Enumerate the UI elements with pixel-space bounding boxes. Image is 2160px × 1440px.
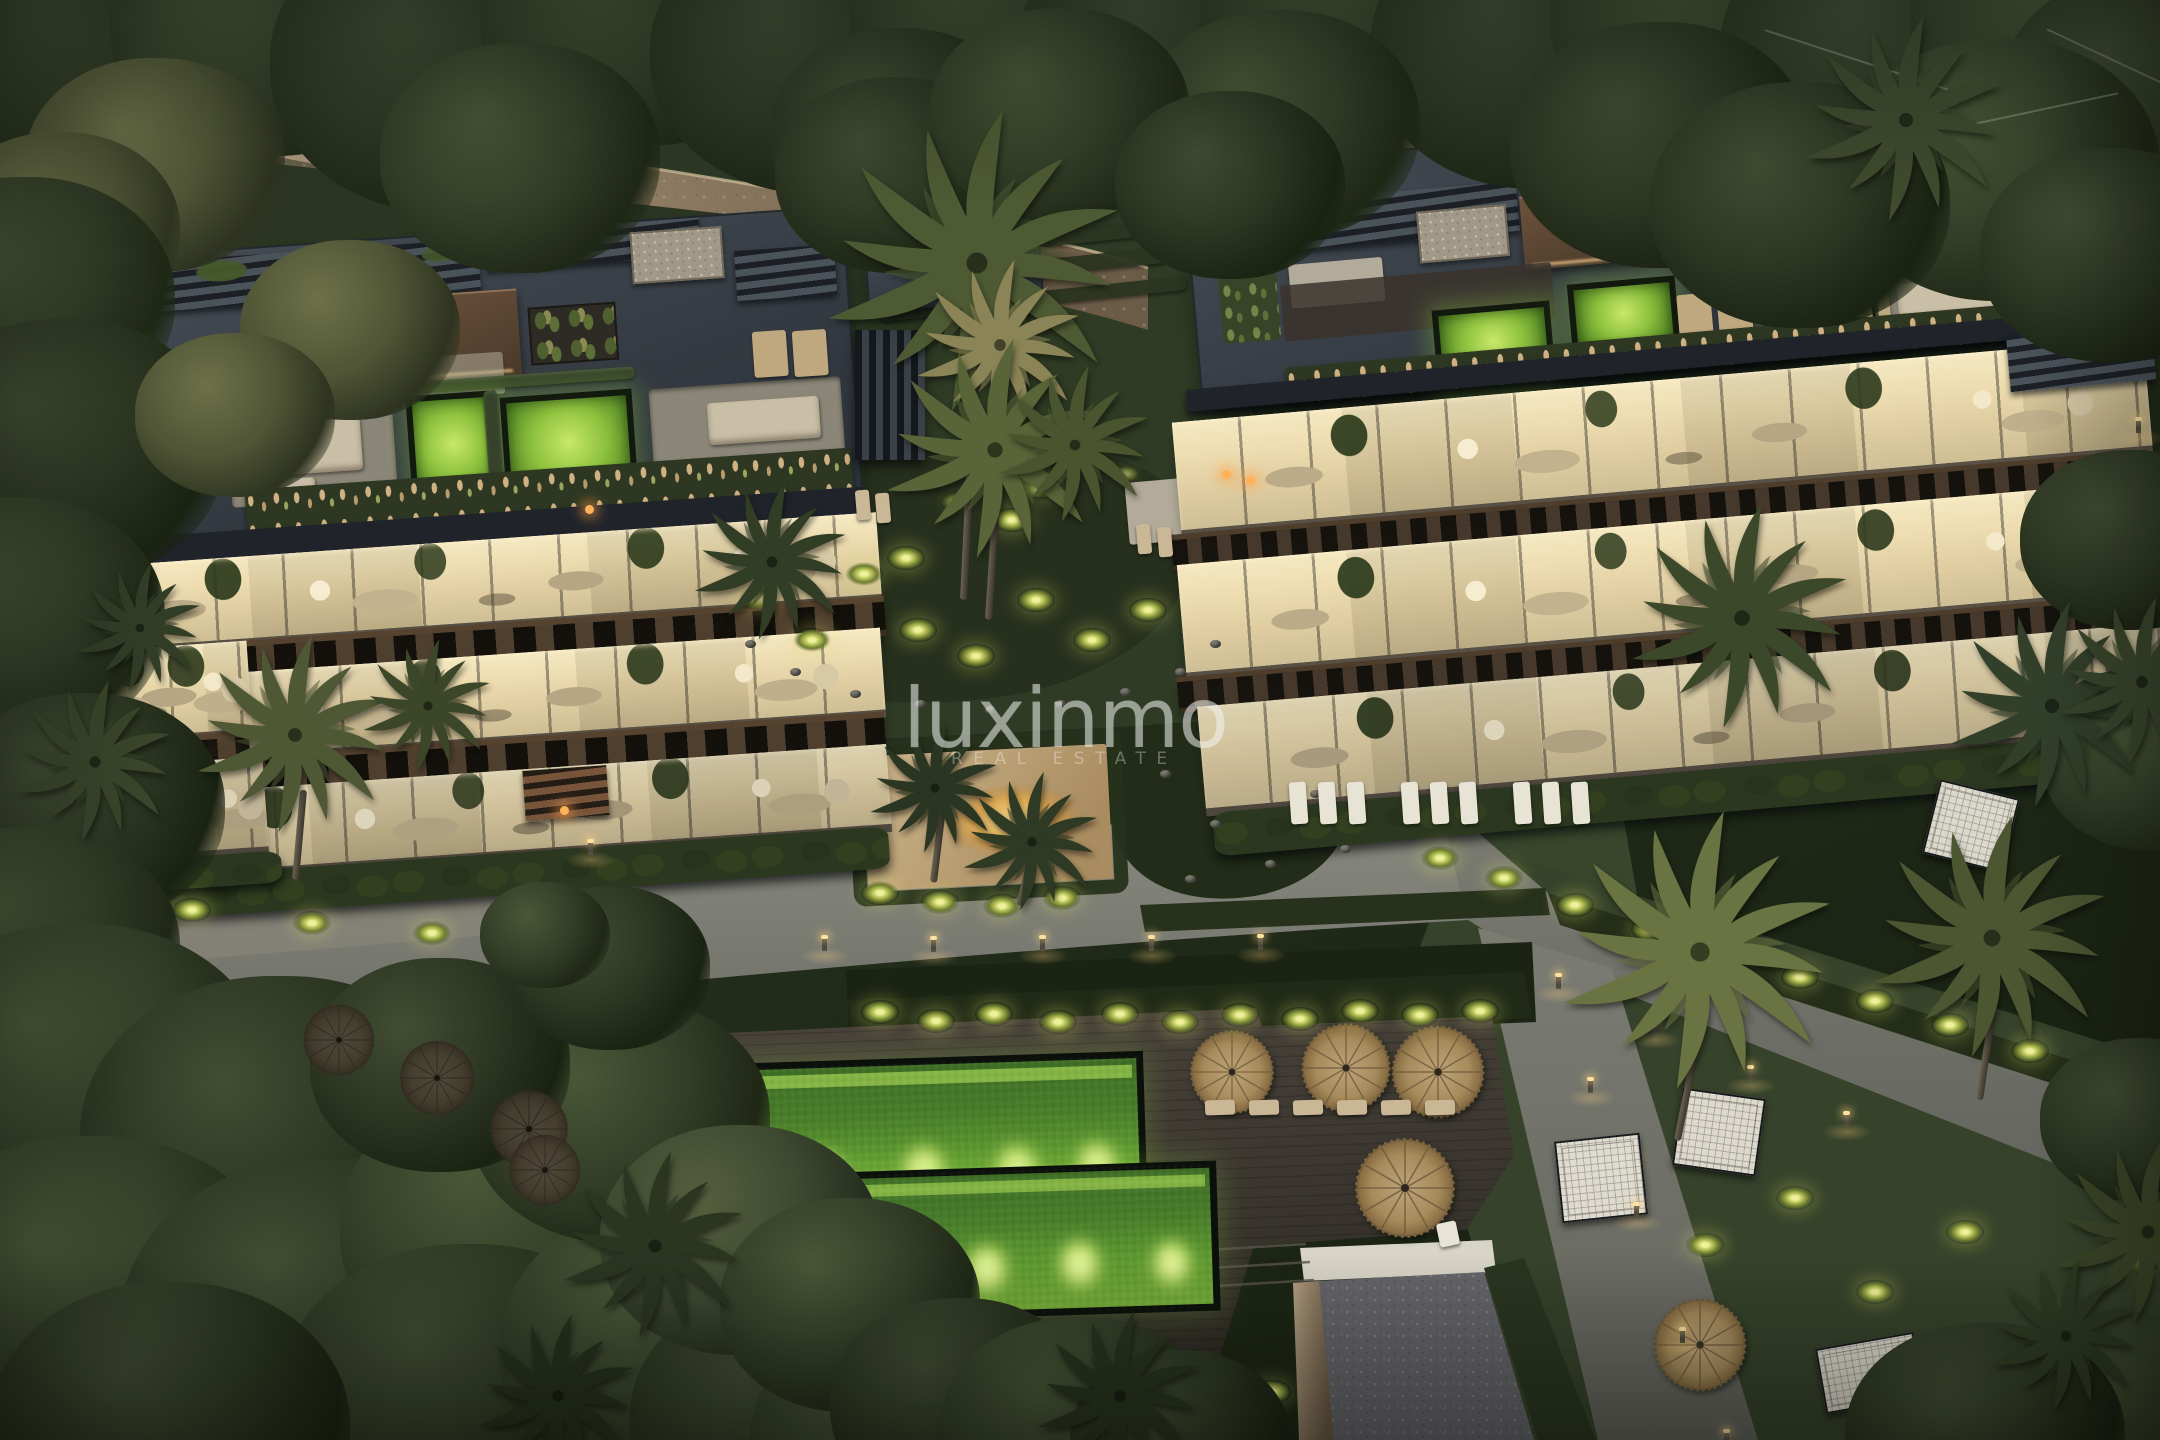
palm-tree — [990, 360, 1160, 530]
palm-tree — [686, 476, 858, 648]
palm-tree — [1794, 8, 2018, 232]
palm-tree — [1028, 1304, 1212, 1440]
palm-tree — [1548, 800, 1852, 1104]
thatch-umbrella — [505, 1130, 585, 1210]
tree-canopy — [380, 43, 660, 273]
thatch-umbrella — [395, 1036, 479, 1120]
thatch-umbrella — [299, 1000, 379, 1080]
tree-canopy — [480, 882, 610, 989]
palm-tree — [2050, 590, 2160, 774]
palm-tree — [956, 766, 1108, 918]
palm-tree — [356, 634, 500, 778]
palm-tree — [70, 558, 210, 698]
tree-canopy — [1115, 91, 1345, 280]
palm-tree — [470, 1308, 646, 1440]
palm-tree — [1620, 496, 1864, 740]
vegetation-layer — [0, 0, 2160, 1440]
palm-tree — [1860, 806, 2124, 1070]
palm-tree — [7, 674, 183, 850]
palm-tree — [1982, 1252, 2150, 1420]
aerial-dusk-render: luxinmo REAL ESTATE — [0, 0, 2160, 1440]
tree-canopy — [135, 333, 335, 497]
